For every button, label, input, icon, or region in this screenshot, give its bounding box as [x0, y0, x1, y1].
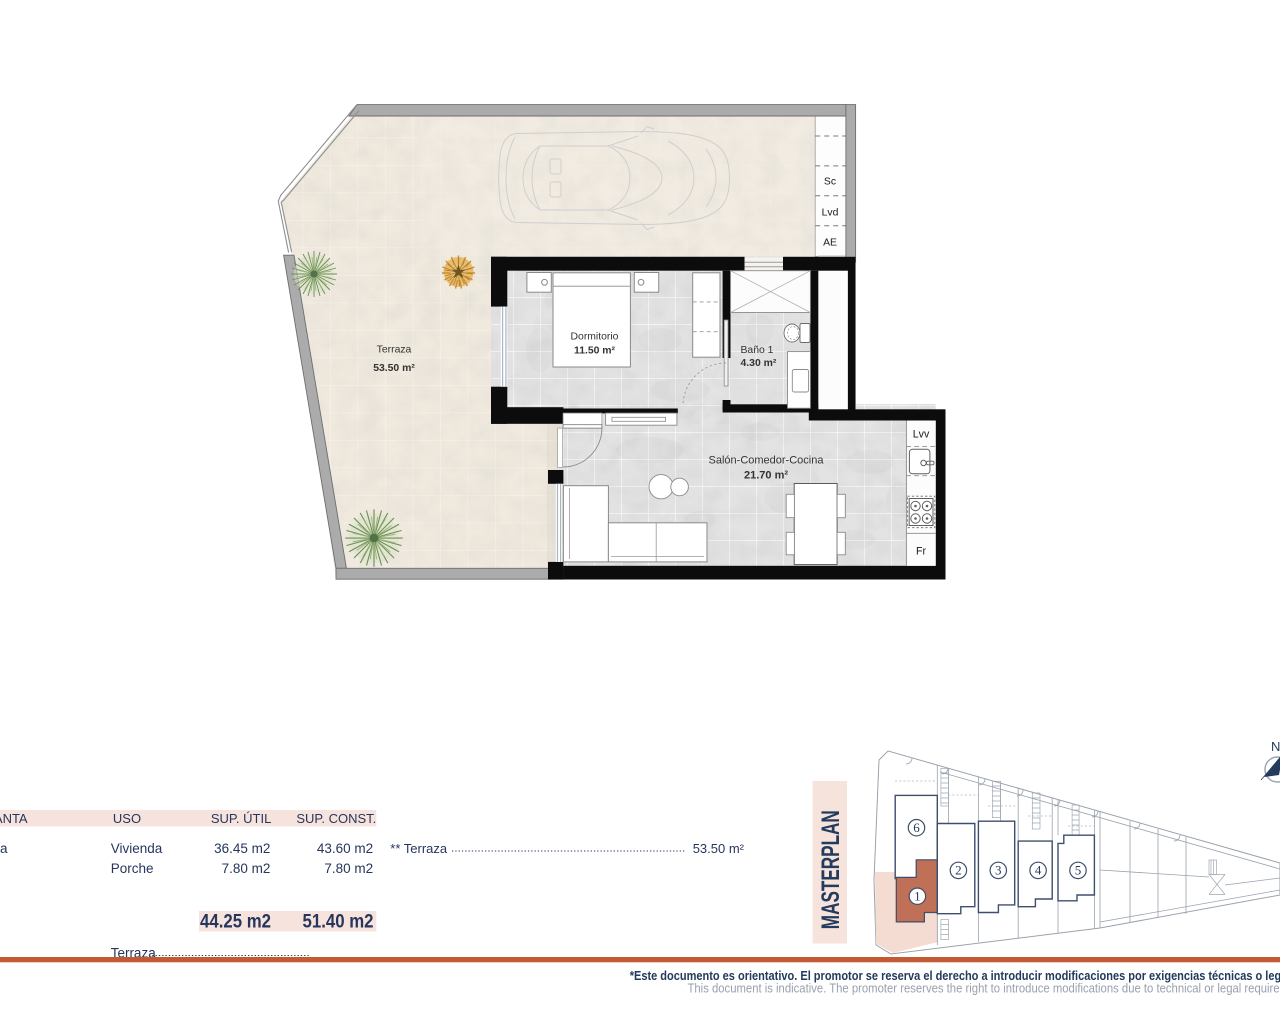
svg-text:11.50 m²: 11.50 m²: [574, 346, 616, 357]
svg-text:SUP. CONST.: SUP. CONST.: [296, 811, 376, 826]
svg-text:43.60 m2: 43.60 m2: [317, 841, 373, 856]
svg-text:Fr: Fr: [916, 546, 926, 558]
svg-text:21.70 m²: 21.70 m²: [744, 470, 788, 482]
svg-text:Baño 1: Baño 1: [741, 345, 774, 356]
svg-text:51.40 m2: 51.40 m2: [303, 911, 374, 933]
svg-text:5: 5: [1075, 863, 1082, 878]
svg-text:53.50 m²: 53.50 m²: [693, 841, 745, 856]
svg-text:Porche: Porche: [111, 861, 154, 876]
svg-text:PLANTA: PLANTA: [0, 811, 28, 826]
svg-text:4: 4: [1035, 863, 1042, 878]
svg-text:Terraza: Terraza: [377, 345, 412, 356]
svg-text:AE: AE: [823, 238, 837, 249]
svg-text:7.80 m2: 7.80 m2: [222, 861, 271, 876]
svg-text:4.30 m²: 4.30 m²: [741, 358, 777, 369]
svg-text:Vivienda: Vivienda: [111, 841, 163, 856]
svg-text:7.80 m2: 7.80 m2: [324, 861, 373, 876]
svg-text:53.50 m²: 53.50 m²: [373, 363, 415, 374]
svg-text:Salón-Comedor-Cocina: Salón-Comedor-Cocina: [709, 455, 825, 467]
svg-text:This document is indicative. T: This document is indicative. The promote…: [688, 981, 1280, 996]
svg-text:6: 6: [913, 820, 920, 835]
svg-text:44.25 m2: 44.25 m2: [200, 911, 271, 933]
svg-text:Dormitorio: Dormitorio: [571, 332, 619, 343]
svg-text:Lvv: Lvv: [913, 429, 930, 441]
svg-text:3: 3: [995, 863, 1002, 878]
svg-text:2: 2: [955, 863, 962, 878]
svg-text:36.45 m2: 36.45 m2: [214, 841, 270, 856]
svg-text:Lvd: Lvd: [822, 208, 839, 219]
svg-text:Baja: Baja: [0, 841, 8, 856]
svg-text:N: N: [1271, 739, 1280, 754]
svg-text:1: 1: [914, 888, 921, 903]
svg-text:SUP. ÚTIL: SUP. ÚTIL: [211, 811, 271, 826]
svg-text:USO: USO: [113, 811, 141, 826]
svg-text:MASTERPLAN: MASTERPLAN: [817, 810, 845, 929]
svg-text:** Terraza: ** Terraza: [390, 841, 448, 856]
svg-text:Sc: Sc: [824, 177, 836, 188]
